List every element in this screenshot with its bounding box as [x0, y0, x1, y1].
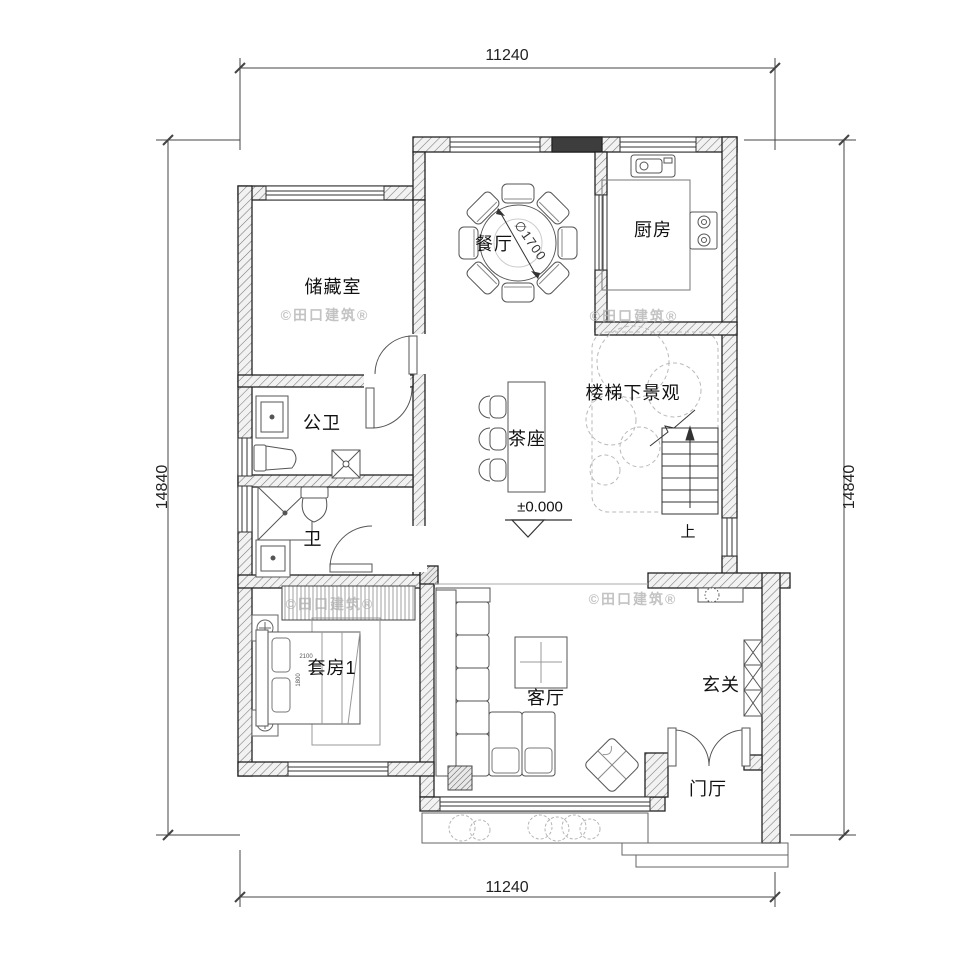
coffee-table — [515, 637, 567, 688]
staircase — [650, 410, 718, 514]
room-label-under-stair: 楼梯下景观 — [586, 379, 681, 405]
watermark-1: ©田口建筑® — [281, 305, 370, 325]
dimension-left: 14840 — [154, 465, 172, 510]
plant-pot — [448, 766, 472, 790]
publicbath-sink — [256, 396, 288, 438]
room-label-storage: 储藏室 — [305, 273, 362, 299]
kitchen-stove — [690, 212, 717, 249]
room-label-tea-seat: 茶座 — [508, 425, 546, 451]
accent-chair — [584, 737, 641, 794]
floor-plan-page: 餐厅 厨房 储藏室 公卫 卫 茶座 楼梯下景观 套房1 客厅 玄关 门厅 上 ±… — [0, 0, 960, 960]
level-marker — [505, 520, 572, 537]
room-label-bath: 卫 — [304, 525, 323, 551]
entry-double-door — [668, 728, 750, 766]
dimension-top: 11240 — [485, 47, 528, 65]
dimension-bottom: 11240 — [485, 879, 528, 897]
door-public-bath — [366, 388, 412, 428]
entry-planter — [698, 588, 743, 602]
floor-drain — [332, 450, 360, 478]
kitchen-sliding-door — [595, 195, 607, 270]
entry-steps — [622, 843, 788, 867]
watermark-2: ©田口建筑® — [590, 306, 679, 326]
room-label-public-bath: 公卫 — [303, 409, 341, 435]
door-bath — [330, 526, 372, 572]
floor-plan-drawing — [0, 0, 960, 960]
bed-width-label: 2100 — [299, 654, 312, 660]
window-bath-left — [238, 486, 252, 532]
window-kitchen-top — [620, 137, 696, 152]
level-label: ±0.000 — [517, 499, 563, 516]
publicbath-toilet — [254, 445, 296, 471]
room-label-kitchen: 厨房 — [634, 216, 672, 242]
watermark-3: ©田口建筑® — [286, 594, 375, 614]
bed-depth-label: 1800 — [296, 673, 302, 686]
kitchen-sink — [631, 155, 675, 177]
window-storage-top — [266, 186, 384, 200]
window-living-bottom — [440, 797, 650, 811]
door-storage — [375, 336, 417, 374]
window-dining-top — [450, 137, 540, 152]
stairs-up-label: 上 — [680, 521, 695, 542]
window-publicbath-left — [238, 438, 252, 476]
window-suite-bottom — [288, 762, 388, 776]
shoe-cabinet — [744, 640, 762, 716]
tea-chairs — [479, 396, 506, 481]
watermark-4: ©田口建筑® — [589, 589, 678, 609]
dimension-right: 14840 — [841, 465, 859, 510]
room-label-dining: 餐厅 — [475, 230, 513, 256]
room-label-suite1: 套房1 — [307, 654, 356, 680]
terrace — [422, 813, 648, 843]
room-label-foyer: 门厅 — [689, 775, 727, 801]
room-label-entrance: 玄关 — [702, 671, 740, 697]
window-stair-right — [722, 518, 737, 556]
room-label-living: 客厅 — [527, 684, 565, 710]
bath-sink — [256, 540, 290, 577]
